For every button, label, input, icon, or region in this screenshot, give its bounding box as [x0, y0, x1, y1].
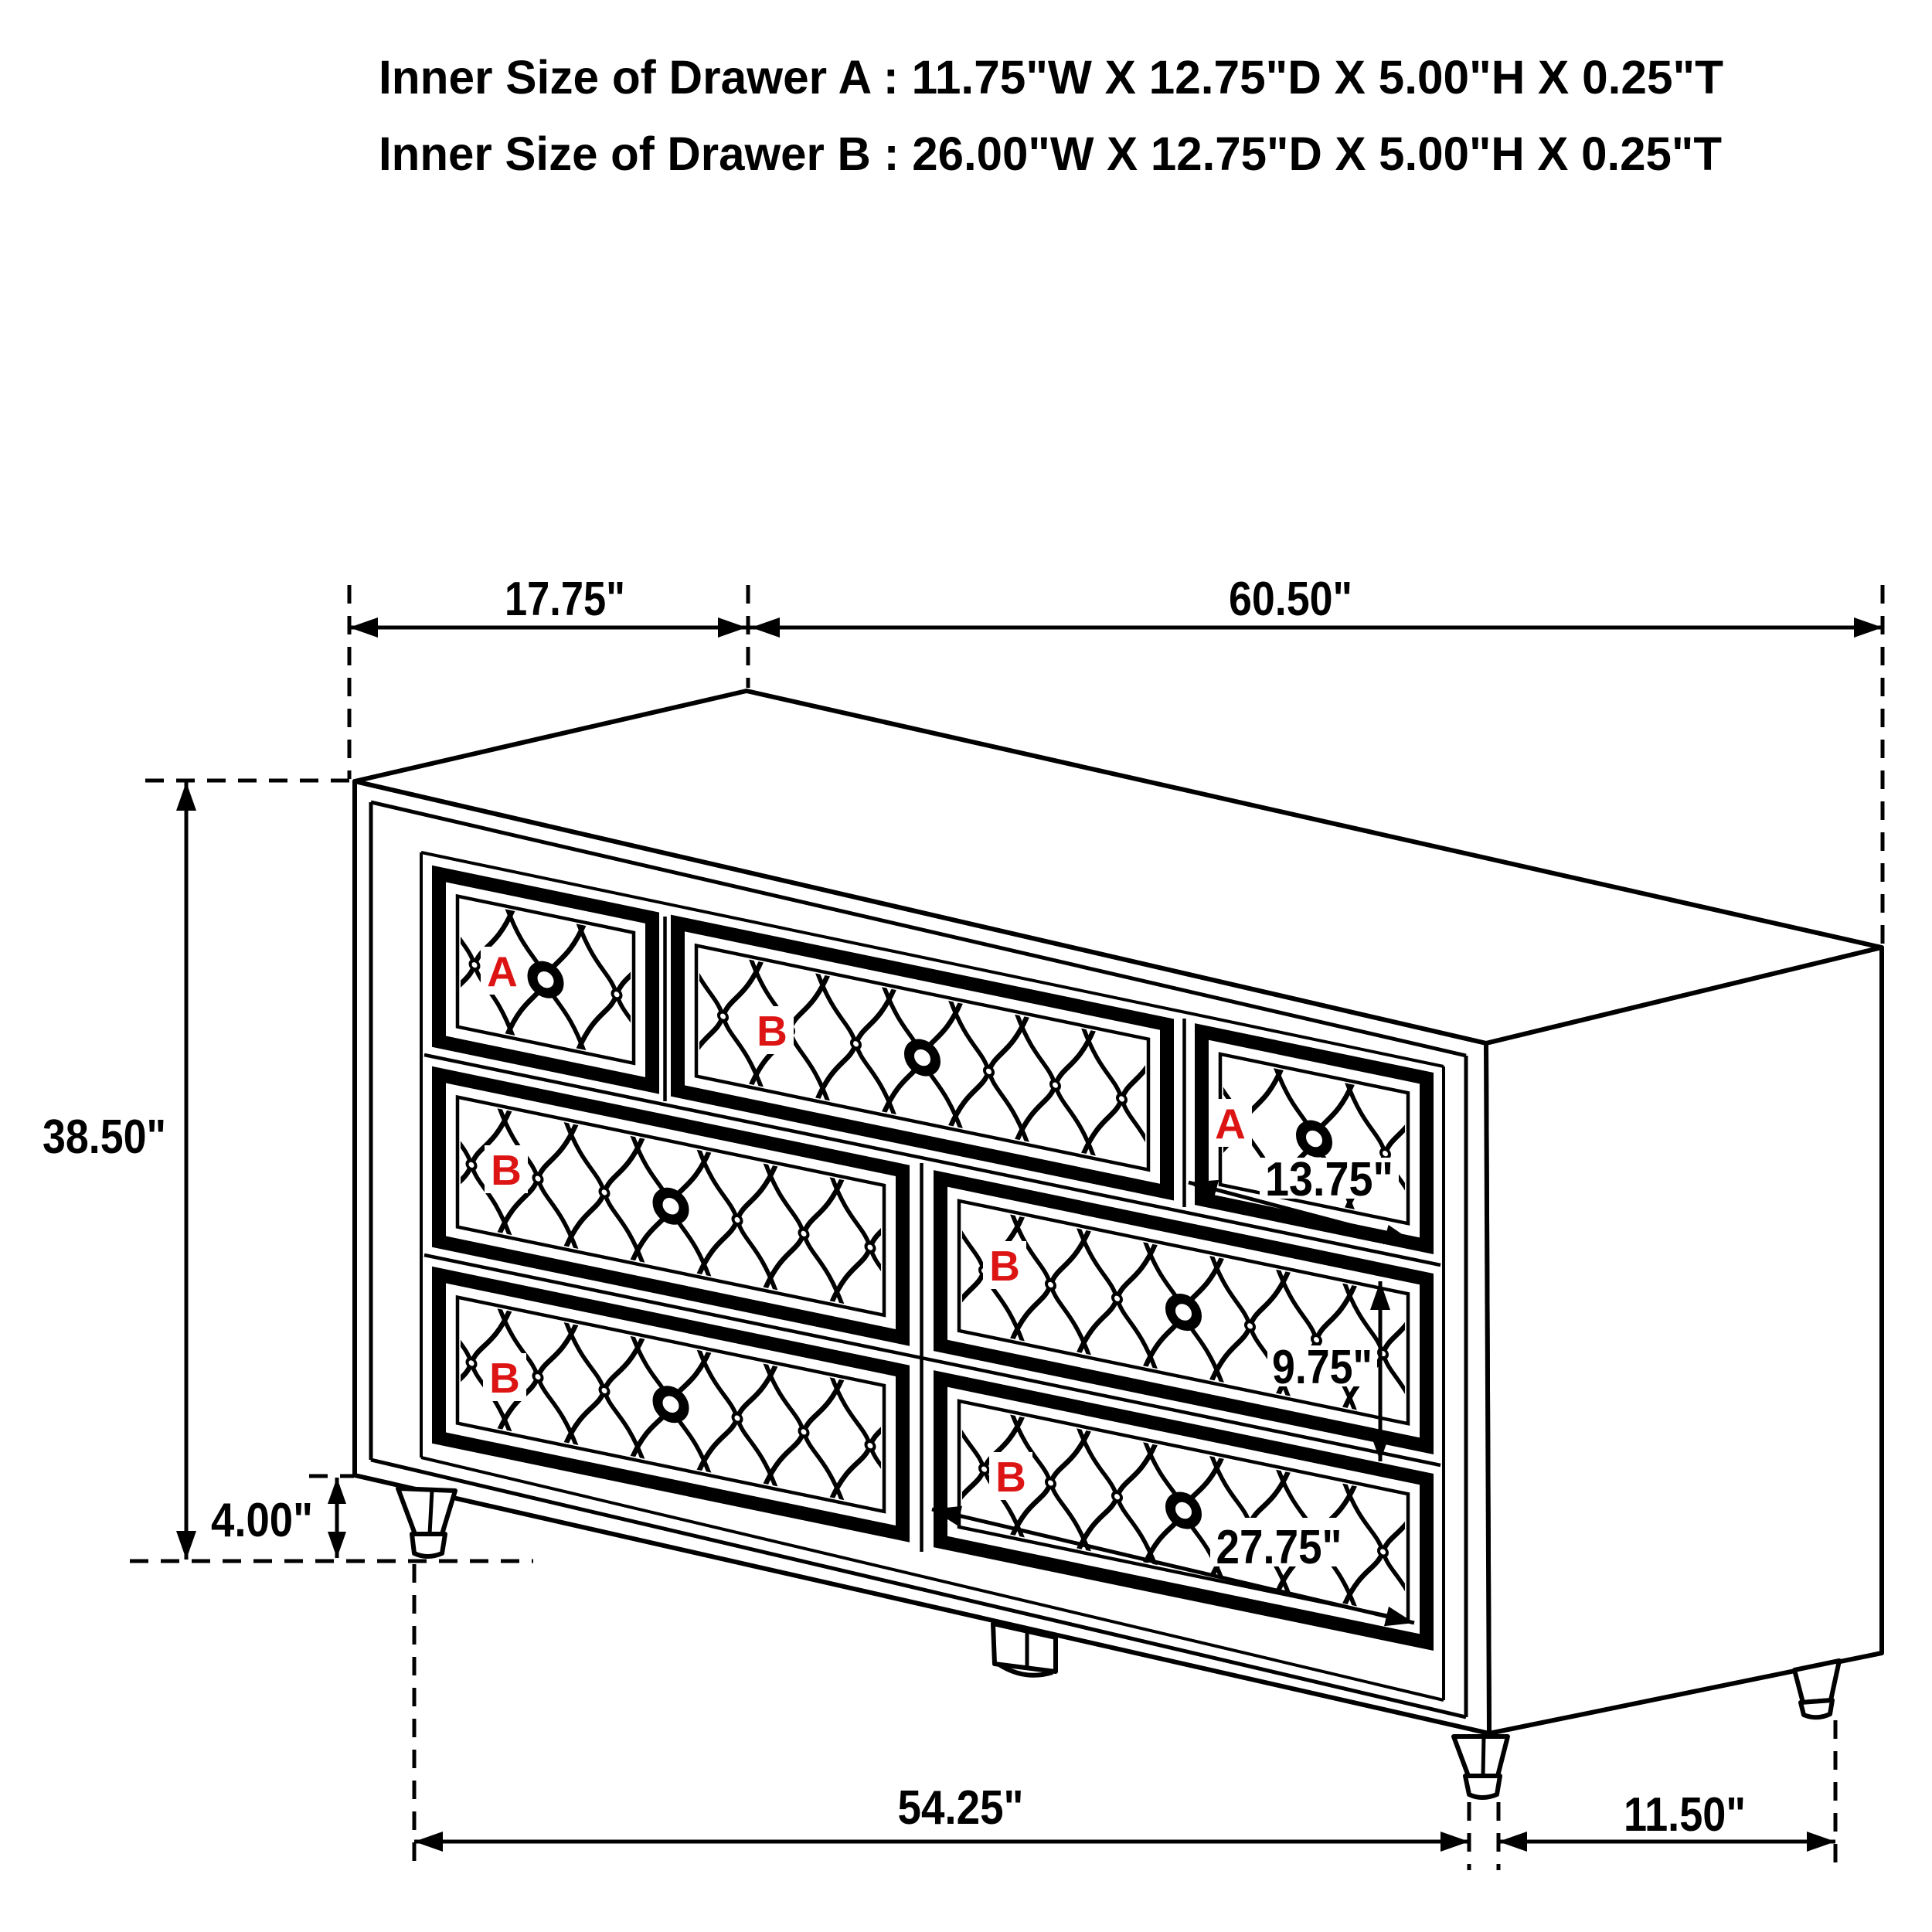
svg-text:Inner Size of Drawer B : 26.00: Inner Size of Drawer B : 26.00"W X 12.75…: [379, 128, 1722, 180]
svg-text:4.00": 4.00": [211, 1494, 313, 1547]
svg-text:B: B: [757, 1007, 787, 1055]
svg-text:54.25": 54.25": [898, 1781, 1024, 1835]
svg-text:A: A: [487, 947, 518, 995]
svg-text:27.75": 27.75": [1216, 1521, 1342, 1574]
svg-text:13.75": 13.75": [1265, 1153, 1393, 1206]
svg-text:B: B: [491, 1146, 522, 1194]
svg-text:B: B: [995, 1453, 1026, 1501]
svg-text:9.75": 9.75": [1272, 1341, 1372, 1394]
svg-text:17.75": 17.75": [505, 573, 625, 626]
svg-text:A: A: [1215, 1100, 1246, 1148]
svg-text:B: B: [489, 1354, 520, 1402]
svg-text:11.50": 11.50": [1624, 1788, 1746, 1842]
svg-text:B: B: [989, 1242, 1020, 1290]
svg-text:Inner Size of Drawer A : 11.75: Inner Size of Drawer A : 11.75"W X 12.75…: [379, 51, 1723, 104]
svg-text:60.50": 60.50": [1229, 573, 1352, 626]
svg-text:38.50": 38.50": [43, 1111, 166, 1164]
